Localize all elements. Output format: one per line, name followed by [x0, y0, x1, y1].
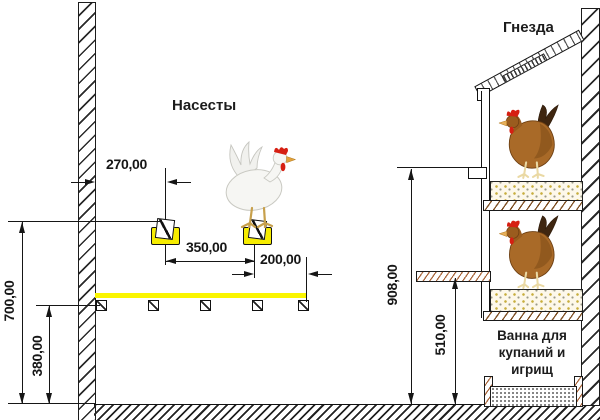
dim-380-line [49, 306, 50, 404]
dim-label-700-text: 700,00 [1, 280, 17, 321]
dim-700-line [22, 222, 23, 404]
dim-label-270: 270,00 [106, 156, 147, 172]
dim-350-line [166, 261, 255, 262]
dim-200-tail-right [318, 274, 332, 275]
bath-label-line1: Ванна для [486, 327, 578, 344]
nest-roof-ramp [474, 30, 584, 97]
dim-510-arrow-top [452, 278, 458, 289]
dim-label-380-text: 380,00 [29, 335, 45, 376]
bath-sand-fill [490, 386, 577, 407]
upper-nest-entry-perch [468, 167, 487, 179]
chicken-coop-diagram: 270,00 350,00 200,00 700,00 380,00 908,0… [0, 0, 600, 420]
dim-908-arrow-bottom [408, 393, 414, 404]
rail-end-extension-line [306, 257, 307, 302]
dim-label-908: 908,00 [384, 261, 400, 309]
lower-nest-bedding [490, 289, 583, 313]
dim-label-350: 350,00 [186, 239, 227, 255]
left-wall [78, 2, 96, 420]
dim-label-200: 200,00 [260, 251, 301, 267]
dim-label-908-text: 908,00 [384, 264, 400, 305]
dim-908-arrow-top [408, 169, 414, 180]
upper-nest-floor-board [483, 200, 583, 211]
white-hen-icon [212, 140, 304, 228]
dim-380-arrow-top [46, 306, 52, 317]
dim-510-arrow-bottom [452, 393, 458, 404]
brown-hen-icon [497, 213, 565, 290]
dim-908-line [411, 169, 412, 404]
rail-support [200, 300, 211, 311]
dim-270-arrow-right [167, 179, 177, 185]
dim-350-arrow-left [166, 258, 176, 264]
brown-hen-icon [497, 101, 565, 181]
dim-200-arrow-left [244, 271, 254, 277]
dim-label-510: 510,00 [432, 311, 448, 359]
dim-350-arrow-right [245, 258, 255, 264]
dim-700-top-ref-line [8, 221, 160, 222]
dim-700-arrow-top [19, 222, 25, 233]
perches-label: Насесты [172, 97, 236, 114]
rail-support [252, 300, 263, 311]
nests-label: Гнезда [503, 19, 554, 36]
right-wall [581, 8, 600, 406]
dim-label-380: 380,00 [29, 332, 45, 380]
bath-label-line2: купаний и [486, 344, 578, 361]
dim-270-tail-right [177, 182, 191, 183]
lower-nest-floor-board [483, 311, 583, 321]
bath-label-line3: игрищ [486, 361, 578, 378]
rail-support [148, 300, 159, 311]
dim-510-line [455, 278, 456, 404]
dim-label-510-text: 510,00 [432, 314, 448, 355]
perch-rail [95, 293, 307, 298]
upper-nest-bedding [490, 181, 583, 202]
dim-200-arrow-right [308, 271, 318, 277]
rail-support [298, 300, 309, 311]
dim-label-700: 700,00 [1, 277, 17, 325]
dim-270-arrow-left [85, 179, 95, 185]
nest-roof-hatch-section [502, 53, 548, 83]
bath-label: Ванна для купаний и игрищ [486, 327, 578, 378]
floor-ref-line [8, 403, 95, 404]
